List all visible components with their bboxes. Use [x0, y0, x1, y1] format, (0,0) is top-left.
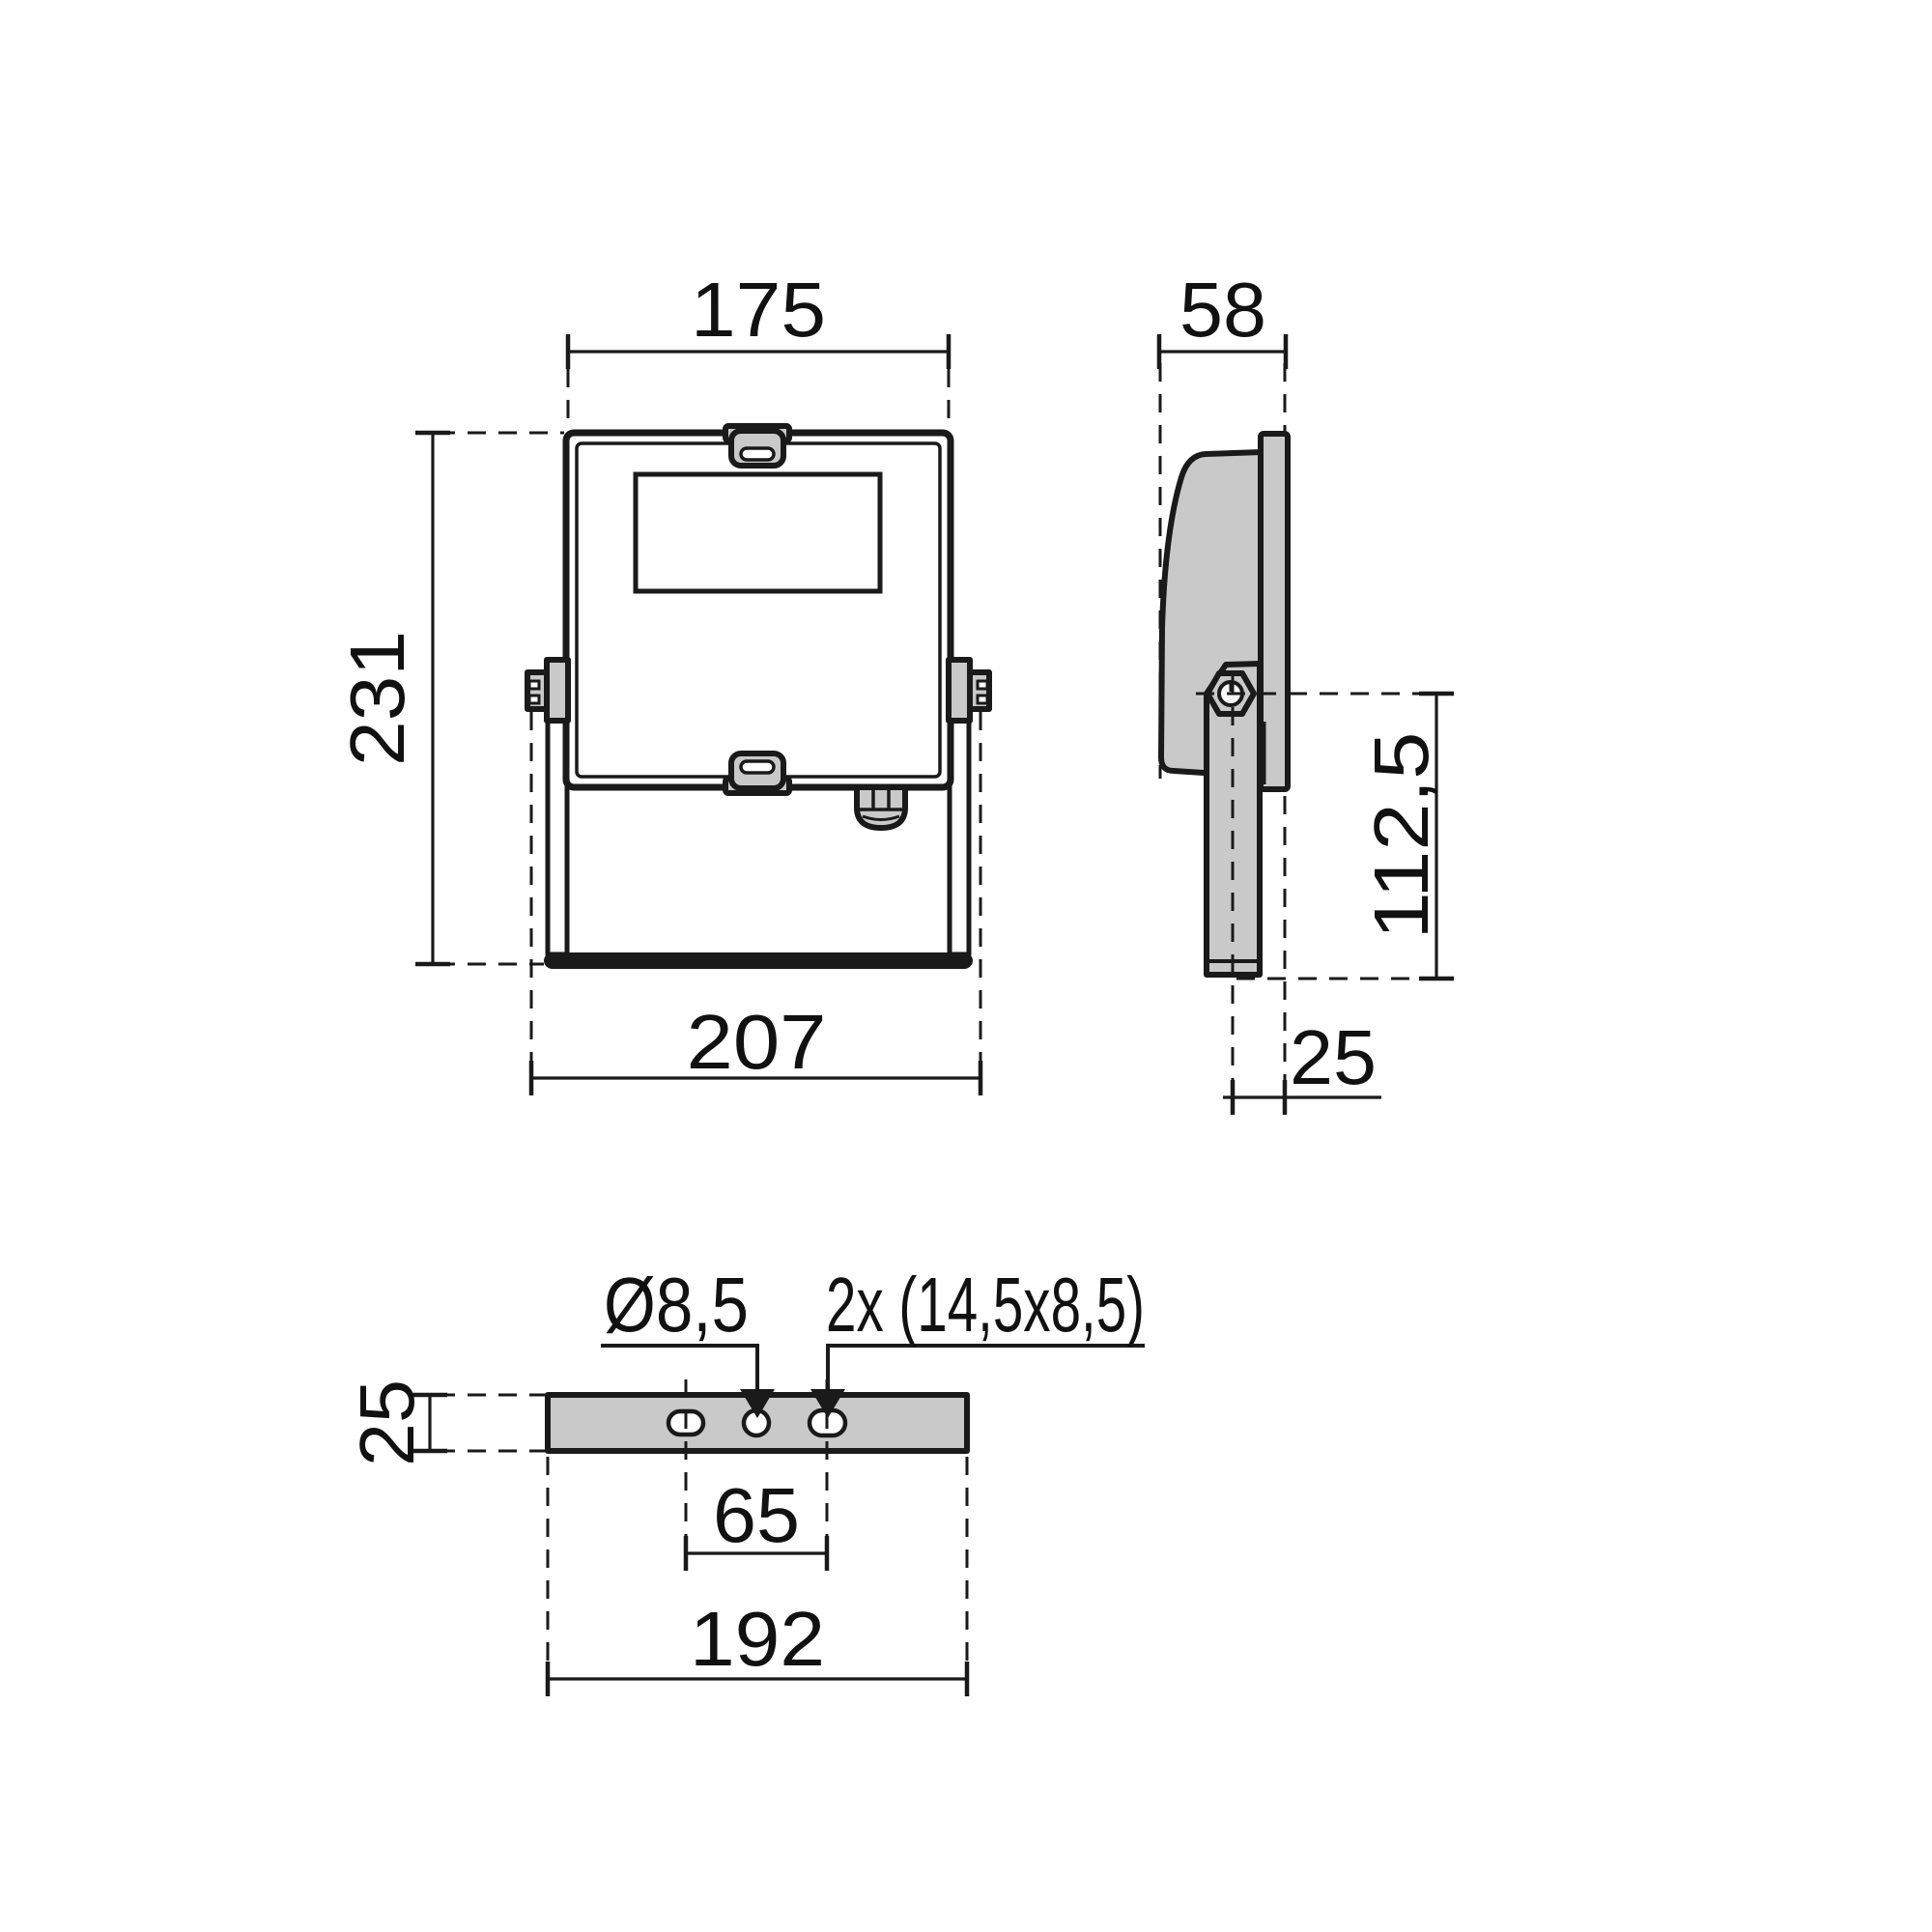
dim-label-front-height: 231	[334, 631, 420, 766]
hinge-left-knob-notch	[529, 696, 539, 703]
label-window	[636, 474, 880, 591]
bottom-clip-notch	[741, 761, 774, 773]
dim-label-front-width-top: 175	[691, 267, 826, 353]
leader-slots	[828, 1346, 1145, 1391]
hinge-left-knob-notch	[529, 681, 539, 689]
hinge-right-plate	[949, 660, 970, 721]
top-clip-notch	[741, 448, 774, 460]
front-view: 175 231	[334, 267, 989, 1095]
side-view: 58 112,5 25	[1159, 267, 1454, 1115]
hinge-right-knob-notch	[978, 696, 987, 703]
technical-drawing-page: 175 231	[0, 0, 1932, 1932]
dim-label-front-width-overall: 207	[687, 999, 827, 1085]
dim-label-side-depth: 58	[1179, 267, 1266, 353]
dim-label-side-pivot-height: 112,5	[1358, 732, 1444, 940]
cable-gland	[857, 787, 905, 828]
dim-label-slot-spacing: 65	[713, 1472, 800, 1558]
floodlight-dimension-drawing: 175 231	[0, 0, 1932, 1932]
hinge-left-plate	[547, 660, 568, 721]
dim-label-plate-length: 192	[690, 1596, 825, 1682]
leader-center-hole	[601, 1346, 757, 1391]
dim-label-slots: 2x (14,5x8,5)	[826, 1262, 1145, 1348]
dim-label-plate-thickness: 25	[344, 1379, 430, 1466]
bracket-crossbar	[544, 952, 973, 969]
bottom-view: 25 Ø8,5 2x (14,5x8,5) 65 192	[344, 1262, 1145, 1696]
dim-label-side-arm-offset: 25	[1290, 1014, 1377, 1100]
hinge-right-knob-notch	[978, 681, 987, 689]
dim-label-center-hole: Ø8,5	[604, 1262, 749, 1348]
